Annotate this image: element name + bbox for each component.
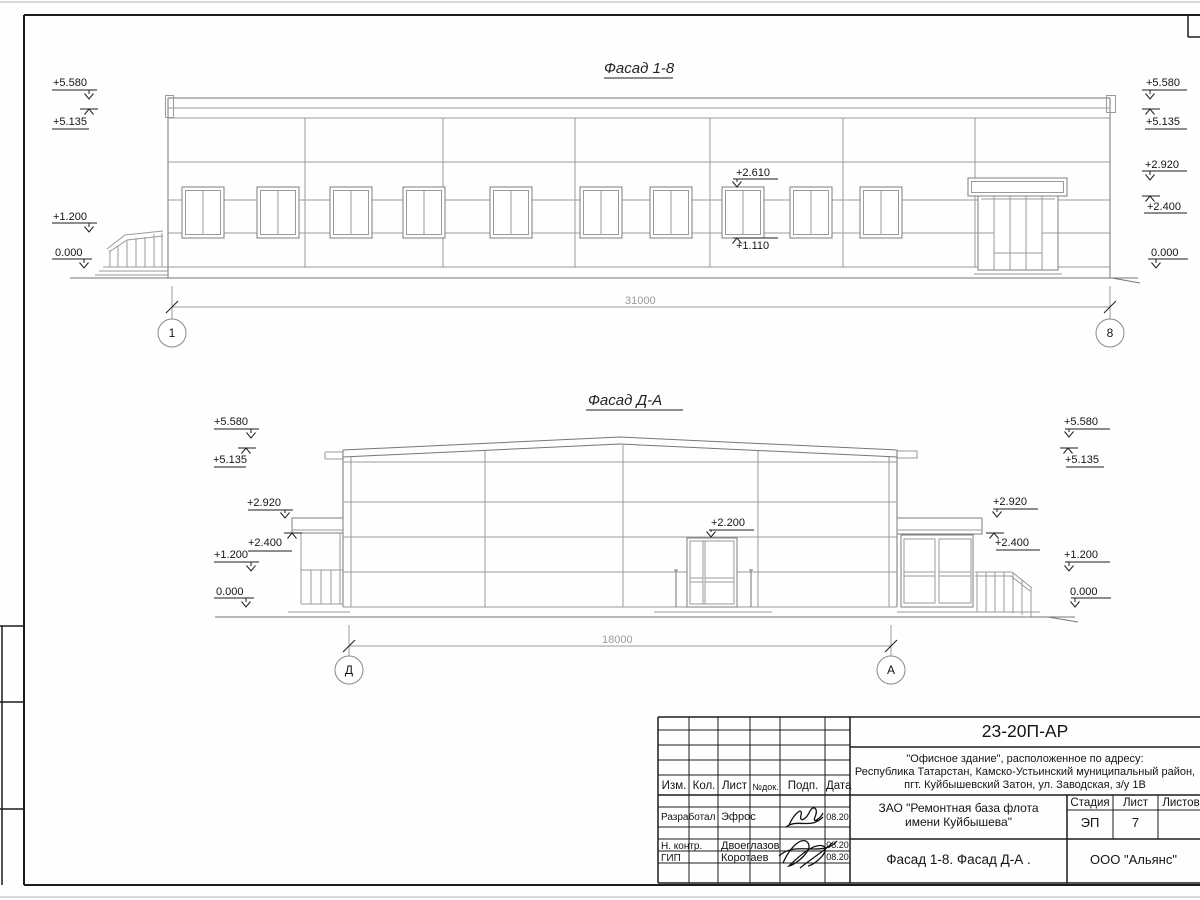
axis-bubble-a: А: [881, 664, 901, 677]
axis-bubble-8: 8: [1100, 327, 1120, 340]
row-role: ГИП: [661, 853, 681, 864]
elevation-mark: +2.920: [993, 496, 1027, 508]
facade-1-8-title: Фасад 1-8: [604, 61, 674, 78]
address-line-2: Республика Татарстан, Камско-Устьинский …: [852, 766, 1198, 778]
row-name: Коротаев: [721, 852, 769, 864]
elevation-mark: +1.200: [214, 549, 248, 561]
facade-windows: [182, 187, 902, 238]
stage-label: Стадия: [1067, 797, 1113, 810]
elevation-mark: +5.135: [213, 454, 247, 466]
elevation-mark: 0.000: [1070, 586, 1098, 598]
window-bottom-mark: +1.110: [736, 240, 769, 252]
address-line-3: пгт. Куйбышевский Затон, ул. Заводская, …: [852, 779, 1198, 791]
stage-value: ЭП: [1067, 816, 1113, 830]
elevation-mark: 0.000: [55, 247, 83, 259]
col-data: Дата: [826, 780, 850, 793]
col-ndok: №док.: [751, 783, 780, 793]
row-date: 08.20: [826, 841, 849, 851]
elevation-mark: +1.200: [53, 211, 87, 223]
elevation-mark: +5.580: [1146, 77, 1180, 89]
signature-efros: [786, 808, 823, 827]
row-date: 08.20: [826, 813, 849, 823]
elevation-mark: 0.000: [216, 586, 244, 598]
elevation-mark: +5.580: [214, 416, 248, 428]
col-kol: Кол.: [690, 780, 718, 793]
elevation-mark: +1.200: [1064, 549, 1098, 561]
facade-da-drawing: [215, 437, 1078, 622]
elevation-mark: +2.400: [1147, 201, 1181, 213]
row-name: Эфрос: [721, 811, 756, 823]
col-podp: Подп.: [781, 780, 825, 793]
drawing-sheet: Фасад 1-8 Фасад Д-А +5.580 +5.135 +1.200…: [0, 0, 1200, 900]
elevation-mark: +5.135: [1065, 454, 1099, 466]
sheet-value: 7: [1113, 816, 1158, 830]
client-line-2: имени Куйбышева": [852, 816, 1065, 829]
axis-bubble-1: 1: [162, 327, 182, 340]
address-line-1: "Офисное здание", расположенное по адрес…: [852, 753, 1198, 765]
elevation-mark: +5.580: [1064, 416, 1098, 428]
elevation-mark: 0.000: [1151, 247, 1179, 259]
dimension-31000: 31000: [625, 295, 656, 307]
door-top-mark: +2.200: [711, 517, 745, 529]
elevation-mark: +2.400: [248, 537, 282, 549]
axis-bubble-d: Д: [339, 664, 359, 677]
client-line-1: ЗАО "Ремонтная база флота: [852, 802, 1065, 815]
elevation-mark: +2.920: [1145, 159, 1179, 171]
row-name: Двоеглазов: [721, 840, 779, 852]
elevation-mark: +5.580: [53, 77, 87, 89]
window-top-mark: +2.610: [736, 167, 770, 179]
project-code: 23-20П-АР: [850, 722, 1200, 741]
elevation-mark: +2.400: [995, 537, 1029, 549]
row-date: 08.20: [826, 853, 849, 863]
col-izm: Изм.: [659, 780, 689, 793]
sheets-label: Листов: [1158, 797, 1200, 810]
elevation-mark: +5.135: [1146, 116, 1180, 128]
dimension-18000: 18000: [602, 634, 633, 646]
document-title: Фасад 1-8. Фасад Д-А .: [852, 853, 1065, 868]
row-role: Н. контр.: [661, 841, 702, 852]
facade-da-title: Фасад Д-А: [588, 393, 662, 410]
col-list: Лист: [719, 780, 750, 793]
row-role: Разработал: [661, 812, 715, 823]
elevation-mark: +5.135: [53, 116, 87, 128]
sheet-label: Лист: [1113, 797, 1158, 810]
facade-1-8-drawing: [70, 96, 1140, 284]
elevation-mark: +2.920: [247, 497, 281, 509]
company-name: ООО "Альянс": [1069, 853, 1198, 867]
